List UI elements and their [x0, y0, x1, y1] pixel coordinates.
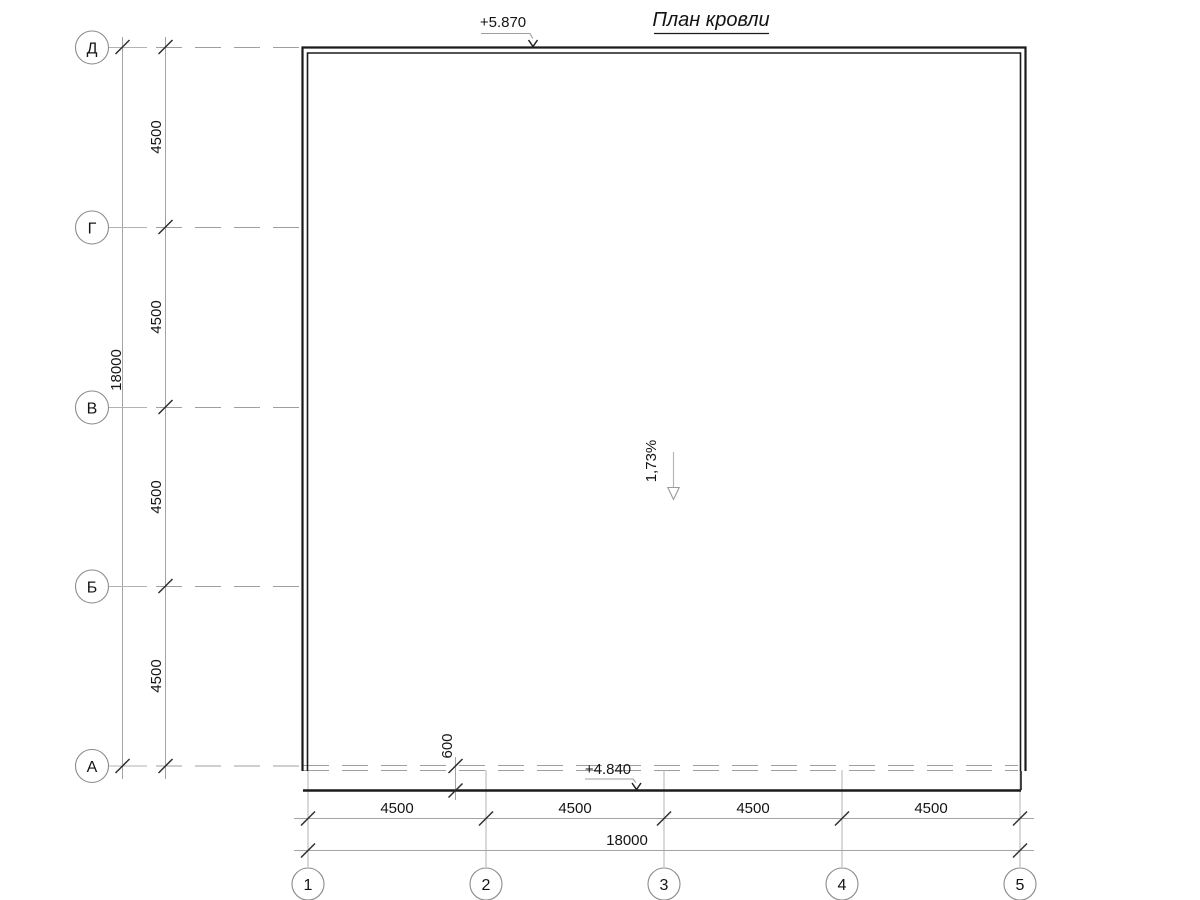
axis-label: 2	[482, 877, 491, 894]
parapet-inner-line	[308, 53, 1021, 771]
dim-value: 4500	[148, 659, 165, 692]
dim-value: 18000	[606, 832, 648, 849]
elevation-leader	[481, 34, 533, 39]
dim-value: 4500	[914, 800, 947, 817]
overhang-dim-value: 600	[439, 733, 456, 758]
down-arrow-icon	[632, 783, 641, 790]
axis-label: Г	[88, 221, 97, 238]
down-arrow-icon	[529, 40, 538, 47]
dim-value: 4500	[148, 300, 165, 333]
axis-label: 4	[838, 877, 847, 894]
vertical-axis-markers: Д Г В Б А	[76, 31, 109, 783]
dimension-texts: 4500 4500 4500 4500 18000 4500 4500 4500…	[108, 120, 948, 849]
axis-label: А	[87, 759, 98, 776]
slope-value: 1,73%	[643, 440, 660, 483]
dimension-ticks	[116, 40, 1028, 858]
dim-value: 4500	[736, 800, 769, 817]
dim-value: 18000	[108, 349, 125, 391]
drawing-title: План кровли	[652, 9, 769, 34]
elevation-mark-top: +5.870	[480, 14, 538, 47]
elevation-leader	[585, 779, 636, 783]
elevation-bottom-value: +4.840	[585, 761, 631, 778]
parapet-outer-line	[303, 48, 1026, 772]
dim-value: 4500	[558, 800, 591, 817]
dim-value: 4500	[148, 120, 165, 153]
dim-value: 4500	[380, 800, 413, 817]
slope-arrow-head-icon	[668, 488, 679, 500]
drawing-sheet: 4500 4500 4500 4500 18000 4500 4500 4500…	[0, 0, 1200, 900]
page-title: План кровли	[652, 9, 769, 31]
roof-outline	[303, 48, 1026, 791]
roof-plan-drawing: 4500 4500 4500 4500 18000 4500 4500 4500…	[0, 0, 1200, 900]
elevation-top-value: +5.870	[480, 14, 526, 31]
construction-lines	[109, 37, 1035, 867]
axis-label: 3	[660, 877, 669, 894]
horizontal-axis-markers: 1 2 3 4 5	[292, 868, 1036, 900]
axis-label: 5	[1016, 877, 1025, 894]
axis-label: 1	[304, 877, 313, 894]
dim-value: 4500	[148, 480, 165, 513]
axis-label: Б	[87, 580, 98, 597]
axis-label: Д	[87, 41, 98, 58]
axis-label: В	[87, 401, 98, 418]
slope-annotation: 1,73%	[643, 440, 679, 500]
